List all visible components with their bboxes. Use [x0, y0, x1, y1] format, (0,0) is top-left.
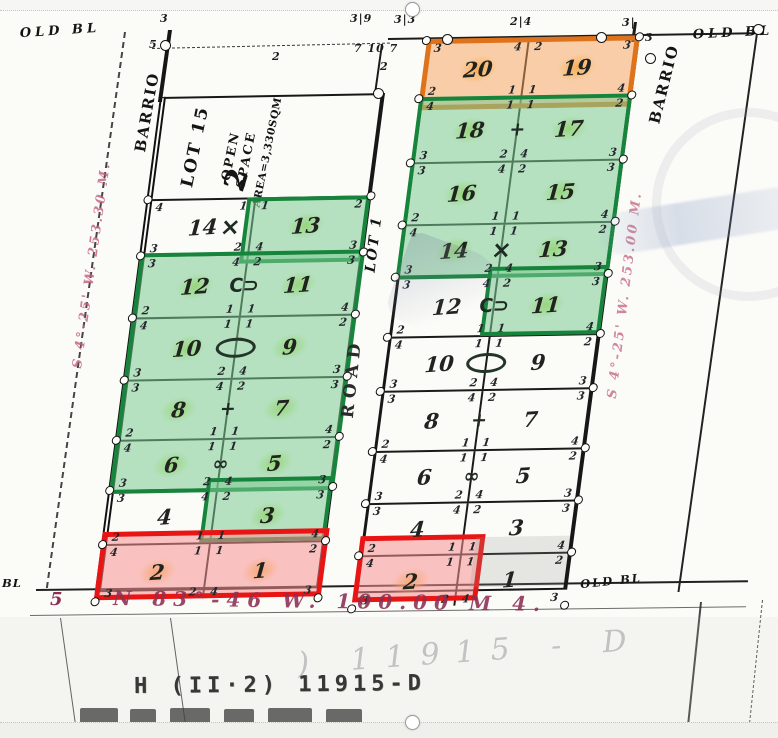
survey-mark-cross: +: [508, 118, 527, 140]
lot-number-10: 10: [171, 335, 202, 362]
corner-tick: 1: [209, 426, 218, 437]
lot-number-12: 12: [179, 273, 210, 300]
corner-tick: 4: [379, 454, 388, 465]
lot-number-11: 11: [530, 291, 561, 318]
corner-tick: 1: [461, 437, 470, 448]
lot-number-6: 6: [163, 452, 180, 478]
lot-row-left-10-9: 41123243109: [129, 314, 352, 380]
corner-tick: 1: [245, 318, 254, 329]
corner-tick: 1: [231, 426, 240, 437]
survey-point-dot: [105, 486, 115, 495]
corner-tick: 4: [324, 424, 333, 435]
corner-tick: 3: [622, 39, 631, 50]
south-bearing-prefix: 5: [50, 589, 63, 610]
corner-tick: 2: [203, 476, 212, 487]
corner-tick: 3: [563, 488, 572, 499]
corner-tick: 2: [111, 532, 120, 543]
survey-point-dot: [421, 36, 431, 45]
corner-tick: 4: [497, 164, 506, 175]
lot-number-14: 14: [439, 237, 470, 264]
corner-tick: 3: [147, 258, 156, 269]
corner-tick: 2: [309, 543, 318, 554]
selection-marquee-bottom: [0, 722, 778, 738]
corner-tick: 2: [233, 242, 242, 253]
lot-number-1: 1: [252, 557, 269, 583]
corner-tick: 4: [409, 227, 418, 238]
survey-point-dot: [367, 447, 377, 456]
corner-tick: 1: [225, 304, 234, 315]
lot-number-3: 3: [508, 515, 525, 541]
top-corner-number: 7 10 7: [354, 42, 398, 55]
corner-tick: 2: [253, 256, 262, 267]
corner-tick: 1: [528, 84, 537, 95]
lot-number-12: 12: [431, 293, 462, 320]
corner-tick: 3: [118, 478, 127, 489]
corner-tick: 4: [394, 339, 403, 350]
corner-tick: 4: [557, 540, 566, 551]
lot-number-9: 9: [281, 334, 298, 360]
corner-tick: 2: [534, 41, 543, 52]
corner-tick: 4: [365, 558, 374, 569]
top-corner-number: 2|4: [510, 15, 532, 28]
corner-tick: 3: [576, 390, 585, 401]
corner-tick: 1: [217, 530, 226, 541]
corner-tick: 2: [396, 324, 405, 335]
corner-tick: 1: [480, 452, 489, 463]
corner-tick: 2: [487, 392, 496, 403]
survey-point-dot: [135, 251, 145, 260]
corner-tick: 2: [237, 381, 246, 392]
lot-number-11: 11: [282, 271, 313, 298]
corner-tick: 3: [404, 264, 413, 275]
corner-tick: 3: [593, 261, 602, 272]
top-corner-number: 5: [149, 38, 158, 51]
survey-mark-cross: +: [218, 398, 237, 420]
corner-tick: 1: [526, 99, 535, 110]
corner-tick: 4: [482, 278, 491, 289]
survey-point-dot: [390, 273, 400, 282]
corner-tick: 4: [311, 528, 320, 539]
survey-mark-hooks: C⊃: [228, 274, 261, 297]
corner-tick: 2: [583, 336, 592, 347]
corner-tick: 2: [411, 212, 420, 223]
corner-tick: 4: [452, 504, 461, 515]
open-space-lot-15: LOT 15 OPEN SPACE AREA=3,330SQM 2: [152, 95, 380, 201]
corner-tick: 2: [568, 450, 577, 461]
lot-number-17: 17: [553, 115, 584, 142]
survey-mark-bowtie: ∞: [211, 453, 230, 475]
corner-tick: 1: [497, 323, 506, 334]
corner-tick: 3: [608, 147, 617, 158]
survey-point-dot: [97, 540, 107, 549]
corner-tick: 4: [489, 377, 498, 388]
lot-row-right-10-9: 41123243109: [385, 333, 597, 391]
survey-mark-star: ×: [218, 213, 242, 241]
survey-mark-star: ×: [490, 236, 514, 264]
corner-tick: 1: [476, 323, 485, 334]
corner-tick: 2: [338, 317, 347, 328]
corner-tick: 3: [116, 493, 125, 504]
corner-tick: 4: [340, 302, 349, 313]
lot-row-left-12-11: 342321141211C⊃: [137, 252, 360, 318]
corner-tick: 2: [354, 198, 363, 209]
lot-number-16: 16: [446, 180, 477, 207]
corner-tick: 4: [224, 476, 233, 487]
selection-handle-bottom[interactable]: [405, 715, 420, 730]
top-corner-number: 3: [160, 12, 169, 25]
corner-tick: 3: [330, 379, 339, 390]
survey-point-dot: [375, 387, 385, 396]
survey-mark-oval: [215, 337, 258, 358]
survey-point-circle: [442, 34, 453, 45]
corner-tick: 2: [473, 504, 482, 515]
corner-tick: 3: [578, 375, 587, 386]
corner-tick: 1: [468, 541, 477, 552]
corner-tick: 4: [467, 392, 476, 403]
corner-tick: 1: [247, 303, 256, 314]
corner-tick: 4: [617, 83, 626, 94]
corner-tick: 3: [316, 489, 325, 500]
lot-number-7: 7: [273, 395, 290, 421]
survey-point-dot: [119, 376, 129, 385]
corner-tick: 1: [260, 200, 269, 211]
lot-number-4: 4: [409, 516, 426, 542]
corner-tick: 1: [506, 99, 515, 110]
survey-point-circle: [373, 88, 384, 99]
corner-tick: 2: [454, 489, 463, 500]
top-corner-number: 3: [645, 31, 654, 44]
lot-number-18: 18: [455, 117, 486, 144]
corner-tick: 3: [349, 240, 358, 251]
corner-tick: 3: [374, 491, 383, 502]
top-corner-number: 2: [272, 50, 281, 63]
corner-tick: 2: [503, 278, 512, 289]
survey-point-dot: [127, 313, 137, 322]
corner-tick: 4: [513, 41, 522, 52]
open-space-block-number: 2: [217, 167, 257, 193]
corner-tick: 1: [207, 441, 216, 452]
corner-tick: 4: [231, 257, 240, 268]
corner-tick: 1: [459, 452, 468, 463]
top-corner-number: 3|: [622, 16, 636, 29]
lot-number-7: 7: [522, 406, 539, 432]
corner-tick: 2: [598, 224, 607, 235]
corner-tick: 3: [561, 503, 570, 514]
lot-number-8: 8: [424, 408, 441, 434]
corner-tick: 1: [193, 545, 202, 556]
corner-tick: 3: [606, 162, 615, 173]
lot-number-13: 13: [290, 212, 321, 239]
screenshot-canvas: LOT 15 OPEN SPACE AREA=3,330SQM 2 411232…: [0, 0, 778, 738]
corner-tick: 4: [570, 435, 579, 446]
lot-row-right-14-13: 411232431413×: [400, 221, 612, 277]
survey-mark-cross: +: [470, 409, 489, 431]
selection-marquee-top: [0, 0, 778, 11]
corner-tick: 3: [387, 394, 396, 405]
lot-number-8: 8: [170, 397, 187, 423]
corner-tick: 2: [322, 439, 331, 450]
corner-tick: 1: [445, 557, 454, 568]
lot-row-left-4-3: 3423211443: [107, 486, 329, 544]
corner-tick: 3: [372, 506, 381, 517]
corner-tick: 4: [109, 547, 118, 558]
lot-number-19: 19: [561, 54, 592, 81]
corner-tick: 1: [482, 437, 491, 448]
survey-mark-oval: [465, 353, 508, 374]
survey-mark-hooks: C⊃: [478, 295, 511, 318]
corner-tick: 3: [389, 379, 398, 390]
lot-number-13: 13: [537, 235, 568, 262]
corner-tick: 1: [195, 530, 204, 541]
lot-number-3: 3: [259, 502, 276, 528]
selection-handle-top[interactable]: [405, 2, 420, 17]
corner-tick: 4: [475, 489, 484, 500]
corner-tick: 4: [155, 202, 164, 213]
lot-number-20: 20: [463, 56, 494, 83]
survey-point-dot: [397, 220, 407, 229]
corner-tick: 1: [223, 319, 232, 330]
corner-tick: 1: [511, 210, 520, 221]
lot-row-right-20-19: 342321142019: [423, 38, 635, 98]
survey-point-circle: [596, 32, 607, 43]
corner-tick: 4: [239, 366, 248, 377]
corner-tick: 3: [131, 382, 140, 393]
lot-number-6: 6: [416, 464, 433, 490]
corner-tick: 1: [474, 338, 483, 349]
corner-tick: 3: [419, 150, 428, 161]
top-corner-number: 3|9: [350, 12, 372, 25]
corner-tick: 2: [222, 491, 231, 502]
lot-number-10: 10: [424, 350, 455, 377]
lot-number-5: 5: [266, 450, 283, 476]
corner-tick: 2: [484, 263, 493, 274]
corner-tick: 2: [381, 439, 390, 450]
corner-tick: 3: [104, 588, 113, 599]
corner-tick: 4: [215, 381, 224, 392]
corner-tick: 4: [520, 148, 529, 159]
corner-tick: 3: [133, 367, 142, 378]
corner-tick: 2: [367, 543, 376, 554]
corner-tick: 4: [425, 101, 434, 112]
corner-tick: 1: [215, 545, 224, 556]
lot-row-right-16-15: 342321141615: [407, 159, 620, 225]
lot-number-9: 9: [530, 349, 547, 375]
lot-number-14: 14: [187, 214, 218, 241]
survey-point-circle: [645, 53, 656, 64]
survey-point-dot: [354, 551, 364, 560]
survey-point-dot: [382, 333, 392, 342]
corner-tick: 1: [495, 338, 504, 349]
lot-row-left-6-5: 4112324365∞: [114, 436, 336, 490]
lot-row-right-8-7: 3423211487+: [377, 387, 590, 451]
corner-tick: 4: [139, 320, 148, 331]
corner-tick: 2: [615, 98, 624, 109]
lot-row-right-4-3: 3423211443: [363, 500, 575, 556]
corner-tick: 3: [433, 43, 442, 54]
lot-row-right-12-11: 342321141211C⊃: [392, 273, 605, 337]
corner-tick: 3: [402, 279, 411, 290]
corner-tick: 4: [255, 241, 264, 252]
survey-point-dot: [143, 195, 153, 204]
corner-tick: 1: [466, 556, 475, 567]
lot-number-2: 2: [149, 559, 166, 585]
top-corner-number: 2: [380, 60, 389, 73]
survey-point-dot: [111, 436, 121, 445]
corner-tick: 3: [347, 255, 356, 266]
survey-number-typed: H (II·2) 11915-D: [134, 671, 426, 699]
corner-tick: 2: [125, 428, 134, 439]
corner-tick: 1: [239, 200, 248, 211]
lot-row-right-18-17: 411232431817+: [415, 95, 628, 163]
lot-number-4: 4: [156, 504, 173, 530]
corner-tick: 2: [518, 163, 527, 174]
corner-tick: 4: [600, 209, 609, 220]
corner-tick: 3: [332, 364, 341, 375]
corner-tick: 3: [149, 243, 158, 254]
corner-tick: 2: [555, 555, 564, 566]
survey-point-circle: [160, 40, 171, 51]
lot-number-1: 1: [501, 567, 518, 593]
open-space-area-label: AREA=3,330SQM: [250, 97, 284, 207]
corner-tick: 3: [417, 165, 426, 176]
corner-tick: 2: [499, 149, 508, 160]
corner-tick: 2: [217, 366, 226, 377]
corner-tick: 4: [505, 263, 514, 274]
survey-point-dot: [414, 94, 424, 103]
bl-left-edge-label: BL: [2, 576, 22, 590]
corner-tick: 3: [318, 474, 327, 485]
corner-tick: 3: [591, 276, 600, 287]
open-space-lot-label: LOT 15: [177, 105, 213, 187]
lot-number-15: 15: [545, 178, 576, 205]
survey-mark-bowtie: ∞: [462, 465, 481, 487]
lot-row-right-6-5: 4112324365∞: [370, 447, 582, 503]
lot-number-5: 5: [515, 462, 532, 488]
corner-tick: 1: [447, 542, 456, 553]
corner-tick: 4: [585, 321, 594, 332]
survey-point-dot: [405, 158, 415, 167]
corner-tick: 4: [201, 491, 210, 502]
corner-tick: 1: [491, 211, 500, 222]
survey-point-circle: [753, 24, 764, 35]
lot-row-left-8-7: 3423211487+: [121, 376, 344, 440]
corner-tick: 2: [427, 86, 436, 97]
survey-point-dot: [360, 499, 370, 508]
corner-tick: 3: [550, 592, 559, 603]
corner-tick: 2: [141, 305, 150, 316]
corner-tick: 4: [123, 443, 132, 454]
corner-tick: 1: [508, 84, 517, 95]
corner-tick: 2: [469, 377, 478, 388]
corner-tick: 1: [229, 441, 238, 452]
